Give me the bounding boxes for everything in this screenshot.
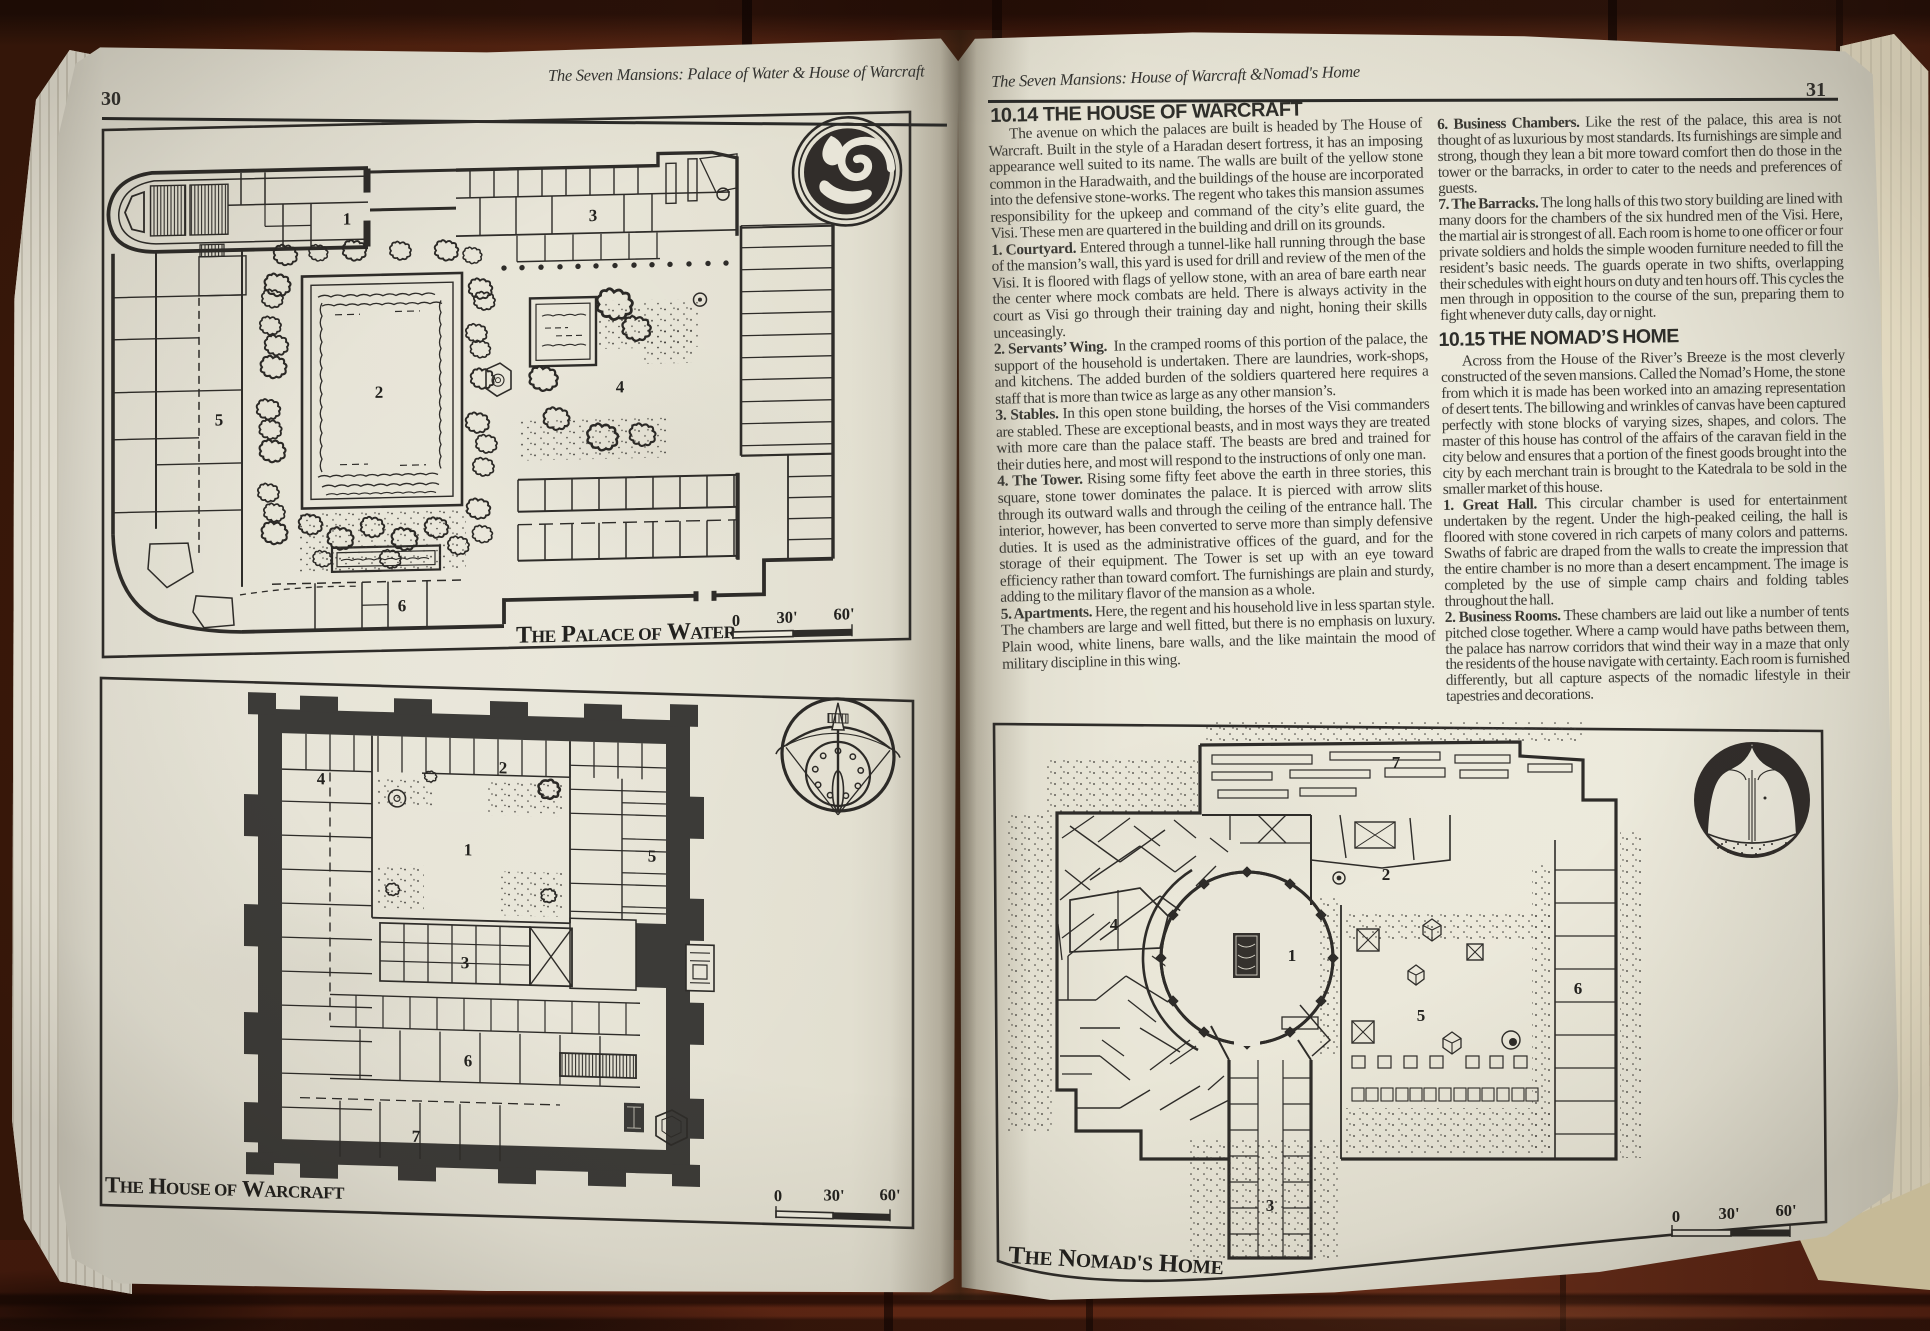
svg-text:60': 60'	[1775, 1201, 1796, 1220]
svg-text:7: 7	[412, 1127, 421, 1146]
svg-text:1: 1	[464, 840, 472, 859]
svg-text:60': 60'	[879, 1185, 900, 1205]
svg-text:30': 30'	[776, 607, 797, 626]
svg-text:6: 6	[1574, 979, 1583, 998]
svg-text:2: 2	[375, 383, 383, 402]
svg-text:0: 0	[1672, 1207, 1680, 1226]
svg-text:30': 30'	[1718, 1204, 1739, 1223]
svg-text:1: 1	[343, 209, 351, 228]
svg-text:6: 6	[464, 1051, 472, 1070]
svg-text:3: 3	[589, 206, 597, 225]
svg-text:6: 6	[398, 596, 406, 615]
svg-text:2: 2	[1382, 865, 1391, 884]
svg-text:4: 4	[1110, 915, 1119, 934]
svg-text:2: 2	[499, 758, 507, 777]
svg-text:30': 30'	[823, 1185, 844, 1205]
svg-text:3: 3	[461, 953, 469, 972]
svg-text:0: 0	[774, 1186, 782, 1205]
svg-text:5: 5	[215, 410, 223, 429]
svg-text:4: 4	[317, 769, 326, 788]
svg-text:5: 5	[1417, 1006, 1426, 1025]
svg-text:5: 5	[648, 846, 656, 865]
svg-text:4: 4	[616, 377, 625, 396]
svg-text:1: 1	[1288, 946, 1297, 965]
svg-text:60': 60'	[833, 604, 854, 623]
svg-text:7: 7	[1392, 753, 1401, 772]
